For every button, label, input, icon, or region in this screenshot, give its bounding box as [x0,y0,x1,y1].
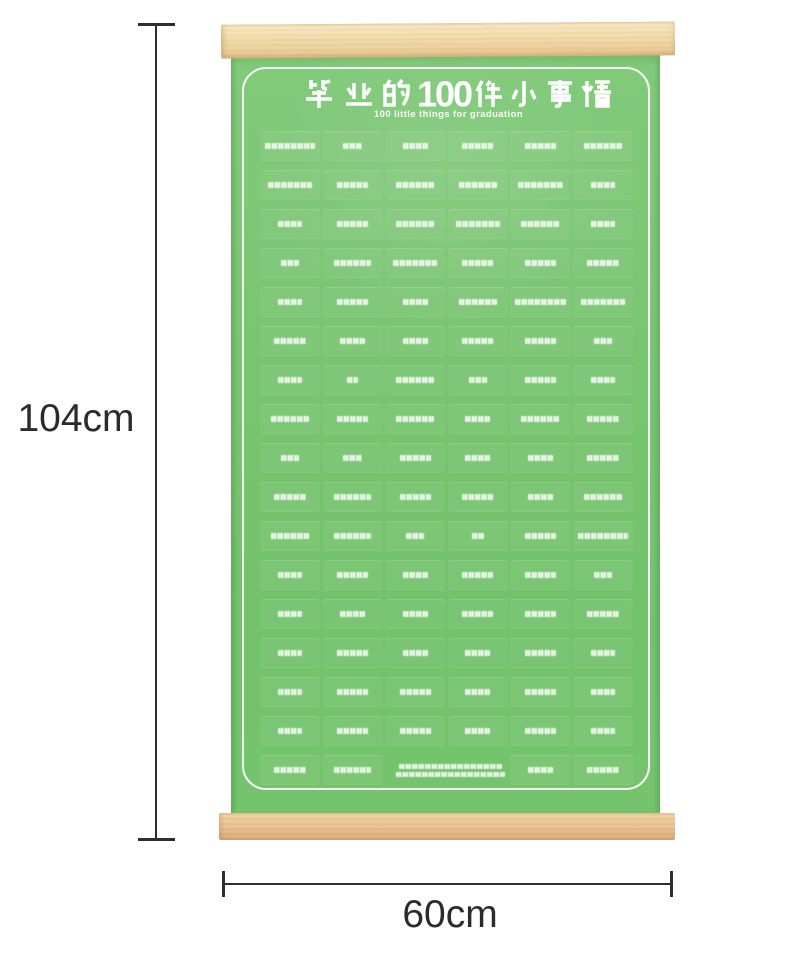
svg-text:100: 100 [417,79,472,110]
